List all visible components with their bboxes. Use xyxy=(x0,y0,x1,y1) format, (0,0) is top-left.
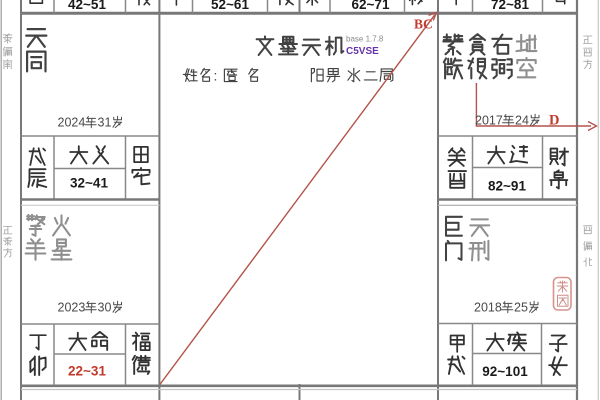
svg-text:2017: 2017 xyxy=(475,114,503,128)
svg-text::: : xyxy=(214,68,218,84)
svg-text:2023: 2023 xyxy=(58,301,86,315)
svg-text:D: D xyxy=(549,113,559,129)
svg-text:72~81: 72~81 xyxy=(491,0,529,12)
svg-text:42~51: 42~51 xyxy=(68,0,106,12)
svg-text:BC: BC xyxy=(414,17,433,32)
svg-text:C5VSE: C5VSE xyxy=(346,46,379,57)
svg-text:92~101: 92~101 xyxy=(482,364,528,379)
svg-text:24: 24 xyxy=(515,114,529,128)
svg-text:2018: 2018 xyxy=(474,301,502,315)
svg-text:30: 30 xyxy=(98,301,112,315)
svg-text:22~31: 22~31 xyxy=(68,364,106,379)
svg-text:32~41: 32~41 xyxy=(70,176,108,191)
svg-text:25: 25 xyxy=(514,301,528,315)
svg-text:31: 31 xyxy=(98,116,112,130)
svg-text:base 1.7.8: base 1.7.8 xyxy=(346,35,384,44)
svg-text:62~71: 62~71 xyxy=(352,0,390,12)
svg-text:2024: 2024 xyxy=(58,116,86,130)
svg-text:52~61: 52~61 xyxy=(211,0,249,12)
svg-text:82~91: 82~91 xyxy=(488,179,526,194)
